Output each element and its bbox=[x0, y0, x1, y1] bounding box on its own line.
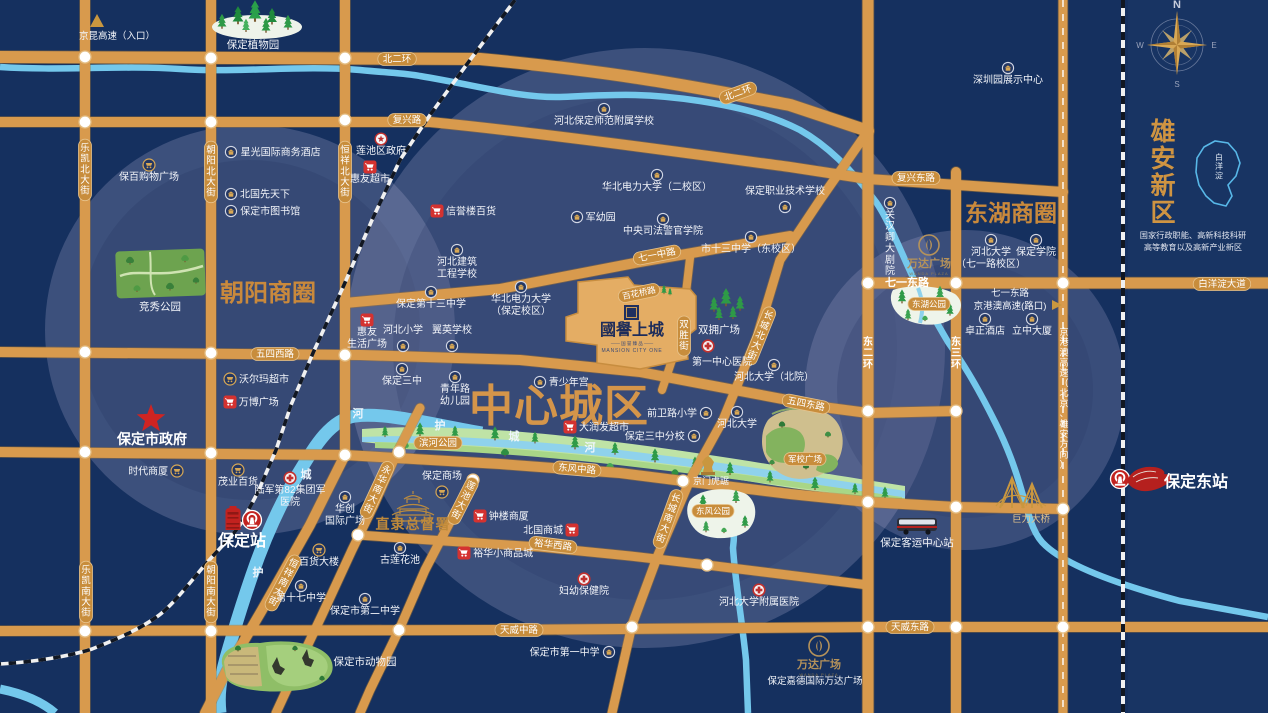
svg-text:立中大厦: 立中大厦 bbox=[1012, 324, 1052, 337]
svg-text:钟楼商厦: 钟楼商厦 bbox=[489, 510, 529, 523]
svg-text:保定市动物园: 保定市动物园 bbox=[334, 655, 397, 668]
svg-text:保定学院: 保定学院 bbox=[1016, 245, 1056, 258]
svg-text:E: E bbox=[1211, 41, 1216, 50]
svg-text:裕华小商品城: 裕华小商品城 bbox=[473, 547, 533, 560]
svg-text:万博广场: 万博广场 bbox=[239, 396, 279, 409]
svg-text:河北建筑: 河北建筑 bbox=[437, 255, 477, 268]
svg-text:复兴路: 复兴路 bbox=[393, 114, 422, 126]
svg-text:军幼园: 军幼园 bbox=[586, 211, 616, 224]
svg-text:保定客运中心站: 保定客运中心站 bbox=[880, 536, 954, 549]
svg-text:城: 城 bbox=[509, 429, 520, 443]
svg-text:天威中路: 天威中路 bbox=[500, 624, 539, 636]
svg-text:复兴东路: 复兴东路 bbox=[897, 172, 936, 184]
svg-text:天威东路: 天威东路 bbox=[891, 621, 930, 633]
svg-text:市十三中学（东校区）: 市十三中学（东校区） bbox=[701, 242, 801, 255]
svg-text:七一东路: 七一东路 bbox=[991, 287, 1030, 299]
svg-text:巨力大桥: 巨力大桥 bbox=[1012, 513, 1051, 525]
svg-text:中央司法警官学院: 中央司法警官学院 bbox=[623, 224, 703, 237]
svg-text:保定市第一中学: 保定市第一中学 bbox=[530, 646, 600, 659]
svg-text:七一东路: 七一东路 bbox=[885, 275, 930, 289]
svg-text:乐凯北大街: 乐凯北大街 bbox=[80, 142, 90, 197]
svg-text:保定嘉德国际万达广场: 保定嘉德国际万达广场 bbox=[767, 675, 862, 687]
svg-text:河北保定师范附属学校: 河北保定师范附属学校 bbox=[554, 114, 654, 127]
svg-text:星光国际商务酒店: 星光国际商务酒店 bbox=[241, 146, 321, 159]
svg-text:万达广场: 万达广场 bbox=[796, 657, 841, 671]
svg-text:朝阳商圈: 朝阳商圈 bbox=[220, 279, 316, 307]
svg-text:MANSION CITY ONE: MANSION CITY ONE bbox=[601, 348, 662, 354]
svg-text:卓正酒店: 卓正酒店 bbox=[965, 324, 1005, 337]
svg-text:直隶总督署: 直隶总督署 bbox=[376, 516, 451, 532]
svg-text:乐凯南大街: 乐凯南大街 bbox=[81, 564, 91, 619]
svg-text:京昆高速（入口）: 京昆高速（入口） bbox=[79, 30, 155, 42]
svg-text:双胜街: 双胜街 bbox=[679, 320, 689, 352]
svg-text:医院: 医院 bbox=[280, 495, 300, 508]
svg-text:东二环: 东二环 bbox=[863, 335, 873, 370]
svg-text:保定市第二中学: 保定市第二中学 bbox=[330, 604, 400, 617]
svg-text:雄安新区: 雄安新区 bbox=[1149, 118, 1175, 227]
svg-text:东三环: 东三环 bbox=[951, 335, 961, 370]
svg-text:第一中心医院: 第一中心医院 bbox=[692, 355, 752, 368]
svg-text:滨河公园: 滨河公园 bbox=[419, 437, 457, 449]
svg-text:城: 城 bbox=[301, 467, 312, 481]
svg-text:五四西路: 五四西路 bbox=[256, 348, 295, 360]
svg-text:保百购物广场: 保百购物广场 bbox=[119, 170, 179, 183]
svg-text:河: 河 bbox=[585, 440, 596, 454]
svg-text:保定三中: 保定三中 bbox=[382, 374, 422, 387]
svg-text:京港澳高速(路口): 京港澳高速(路口) bbox=[974, 300, 1047, 312]
svg-text:青年路: 青年路 bbox=[440, 382, 470, 395]
svg-text:妇幼保健院: 妇幼保健院 bbox=[559, 584, 609, 597]
svg-text:白洋淀: 白洋淀 bbox=[1215, 152, 1223, 180]
svg-text:信誉楼百货: 信誉楼百货 bbox=[446, 205, 496, 218]
svg-text:恒祥北大街: 恒祥北大街 bbox=[340, 144, 350, 199]
svg-text:河北大学（北院）: 河北大学（北院） bbox=[734, 370, 814, 383]
svg-text:S: S bbox=[1174, 80, 1179, 89]
svg-text:北二环: 北二环 bbox=[383, 54, 412, 65]
svg-text:华北电力大学: 华北电力大学 bbox=[491, 292, 551, 305]
svg-text:东风公园: 东风公园 bbox=[696, 506, 730, 516]
svg-text:保定市政府: 保定市政府 bbox=[116, 431, 187, 447]
svg-text:幼儿园: 幼儿园 bbox=[440, 394, 470, 407]
svg-text:河北大学: 河北大学 bbox=[717, 417, 757, 430]
svg-text:河北大学附属医院: 河北大学附属医院 bbox=[719, 595, 799, 608]
svg-text:河北小学: 河北小学 bbox=[383, 323, 423, 336]
svg-text:国家行政职能、高新科技科研: 国家行政职能、高新科技科研 bbox=[1140, 230, 1246, 240]
svg-text:万达广场: 万达广场 bbox=[906, 256, 951, 270]
svg-text:保定植物园: 保定植物园 bbox=[227, 38, 280, 51]
svg-text:竞秀公园: 竞秀公园 bbox=[139, 300, 181, 313]
svg-text:N: N bbox=[1173, 0, 1181, 11]
svg-text:保定市图书馆: 保定市图书馆 bbox=[240, 205, 300, 218]
svg-text:北国先天下: 北国先天下 bbox=[240, 189, 290, 201]
svg-text:深圳园展示中心: 深圳园展示中心 bbox=[973, 73, 1043, 86]
svg-text:京门虎踞: 京门虎踞 bbox=[693, 475, 729, 486]
svg-text:陆军第82集团军: 陆军第82集团军 bbox=[254, 483, 325, 496]
svg-text:惠友超市: 惠友超市 bbox=[350, 172, 390, 185]
svg-text:青少年宫: 青少年宫 bbox=[549, 376, 589, 389]
svg-text:第十七中学: 第十七中学 bbox=[276, 591, 326, 604]
svg-text:莲池区政府: 莲池区政府 bbox=[356, 144, 406, 157]
svg-text:东湖商圈: 东湖商圈 bbox=[965, 200, 1057, 226]
svg-text:高等教育以及高新产业新区: 高等教育以及高新产业新区 bbox=[1144, 242, 1242, 252]
svg-text:白洋淀大道: 白洋淀大道 bbox=[1198, 278, 1246, 290]
svg-text:大润发超市: 大润发超市 bbox=[579, 421, 629, 434]
svg-text:河北大学: 河北大学 bbox=[971, 245, 1011, 258]
svg-text:保定第十三中学: 保定第十三中学 bbox=[396, 297, 466, 310]
svg-text:时代商厦: 时代商厦 bbox=[128, 465, 168, 478]
svg-text:河: 河 bbox=[353, 406, 364, 420]
svg-text:前卫路小学: 前卫路小学 bbox=[647, 407, 697, 420]
svg-text:华创: 华创 bbox=[335, 502, 355, 515]
svg-text:保定东站: 保定东站 bbox=[1163, 472, 1228, 491]
svg-text:保定站: 保定站 bbox=[217, 531, 266, 550]
svg-text:百货大楼: 百货大楼 bbox=[299, 555, 339, 568]
svg-text:（七一路校区）: （七一路校区） bbox=[956, 257, 1026, 270]
svg-text:茂业百货: 茂业百货 bbox=[218, 475, 258, 488]
svg-text:北国商城: 北国商城 bbox=[523, 524, 563, 537]
svg-text:双拥广场: 双拥广场 bbox=[698, 323, 740, 336]
svg-text:惠友: 惠友 bbox=[357, 325, 377, 338]
svg-text:华北电力大学（二校区）: 华北电力大学（二校区） bbox=[602, 180, 712, 193]
svg-text:WANDA PLAZA: WANDA PLAZA bbox=[909, 271, 948, 276]
svg-text:（保定校区）: （保定校区） bbox=[491, 304, 551, 317]
svg-text:W: W bbox=[1136, 41, 1144, 50]
svg-text:朝阳北大街: 朝阳北大街 bbox=[206, 145, 216, 199]
svg-text:國譽上城: 國譽上城 bbox=[600, 320, 664, 339]
svg-text:沃尔玛超市: 沃尔玛超市 bbox=[239, 373, 289, 386]
svg-text:保定职业技术学校: 保定职业技术学校 bbox=[745, 184, 825, 197]
svg-text:京港澳高速（北京、雄安方向）: 京港澳高速（北京、雄安方向） bbox=[1059, 326, 1068, 470]
svg-text:军校广场: 军校广场 bbox=[788, 454, 822, 464]
svg-text:关汉卿大剧院: 关汉卿大剧院 bbox=[885, 208, 895, 277]
svg-text:朝阳南大街: 朝阳南大街 bbox=[206, 565, 216, 619]
svg-text:保定商场: 保定商场 bbox=[422, 469, 462, 482]
svg-text:—— 国 誉 臻 品 ——: —— 国 誉 臻 品 —— bbox=[611, 340, 654, 347]
svg-text:护: 护 bbox=[253, 565, 264, 579]
svg-text:工程学校: 工程学校 bbox=[437, 267, 477, 280]
svg-text:古莲花池: 古莲花池 bbox=[380, 553, 420, 566]
svg-text:护: 护 bbox=[435, 418, 446, 432]
svg-text:东湖公园: 东湖公园 bbox=[912, 299, 946, 309]
svg-text:国际广场: 国际广场 bbox=[325, 514, 365, 527]
svg-text:生活广场: 生活广场 bbox=[347, 337, 387, 350]
svg-text:保定三中分校: 保定三中分校 bbox=[625, 430, 685, 443]
svg-text:翼英学校: 翼英学校 bbox=[432, 323, 472, 336]
